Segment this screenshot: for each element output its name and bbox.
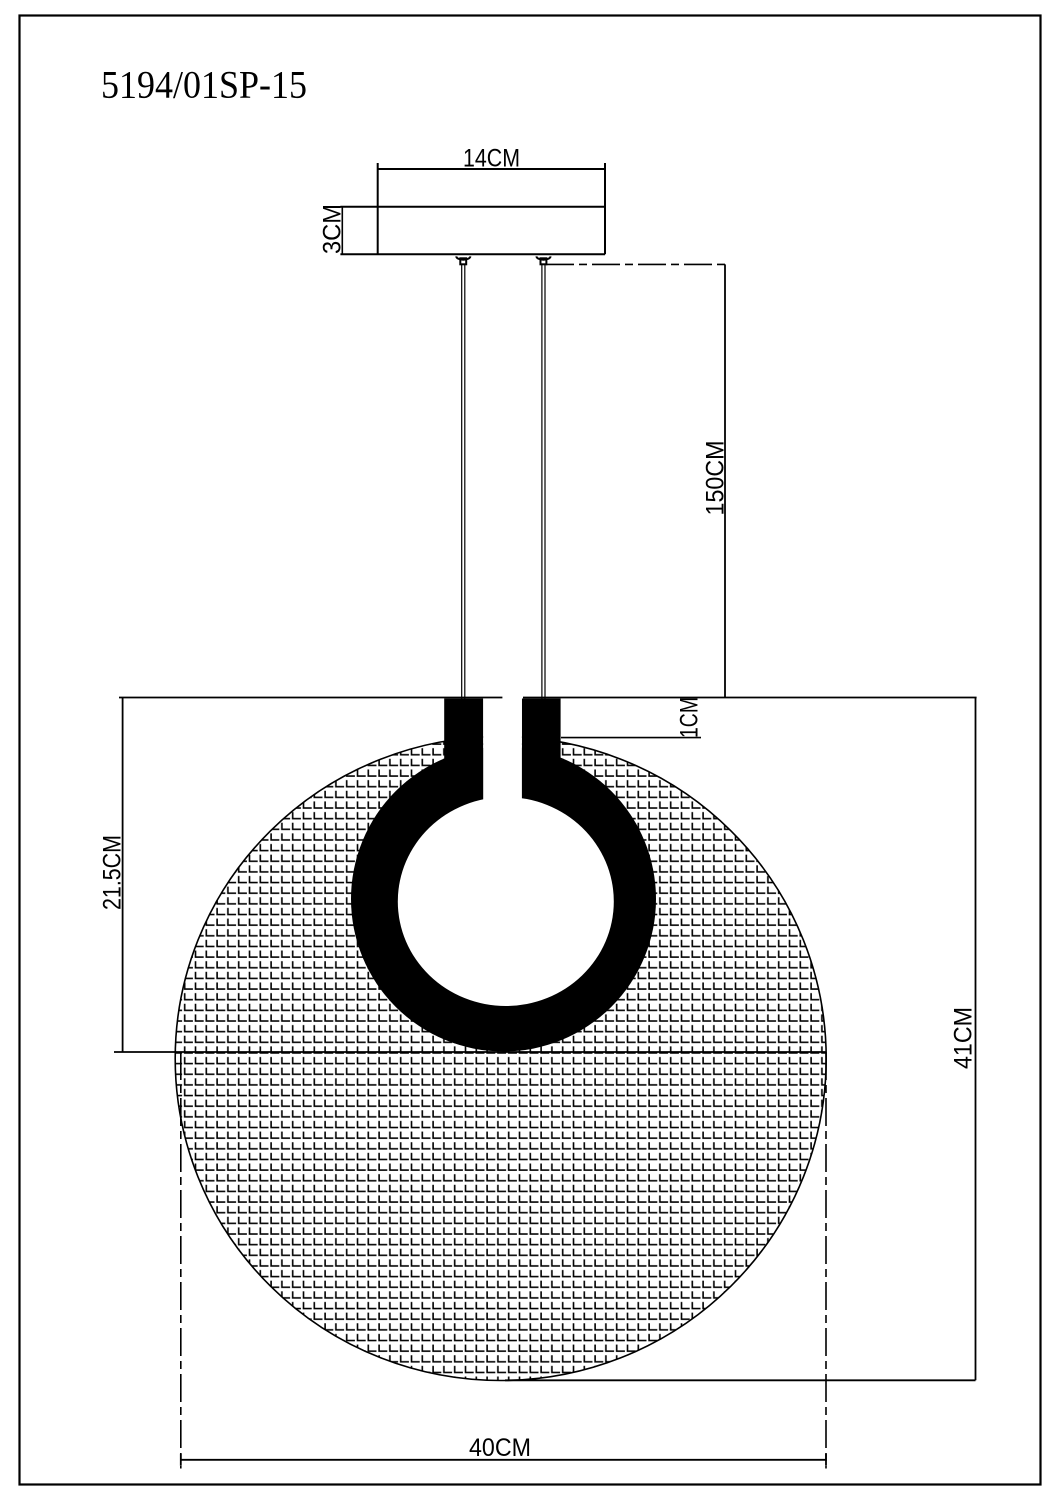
svg-text:5194/01SP-15: 5194/01SP-15 [101, 64, 307, 107]
svg-text:41CM: 41CM [950, 1007, 978, 1069]
svg-text:1CM: 1CM [676, 697, 704, 738]
svg-text:21.5CM: 21.5CM [99, 835, 127, 910]
svg-text:40CM: 40CM [469, 1434, 531, 1462]
svg-text:150CM: 150CM [702, 441, 730, 516]
svg-text:3CM: 3CM [319, 204, 347, 254]
